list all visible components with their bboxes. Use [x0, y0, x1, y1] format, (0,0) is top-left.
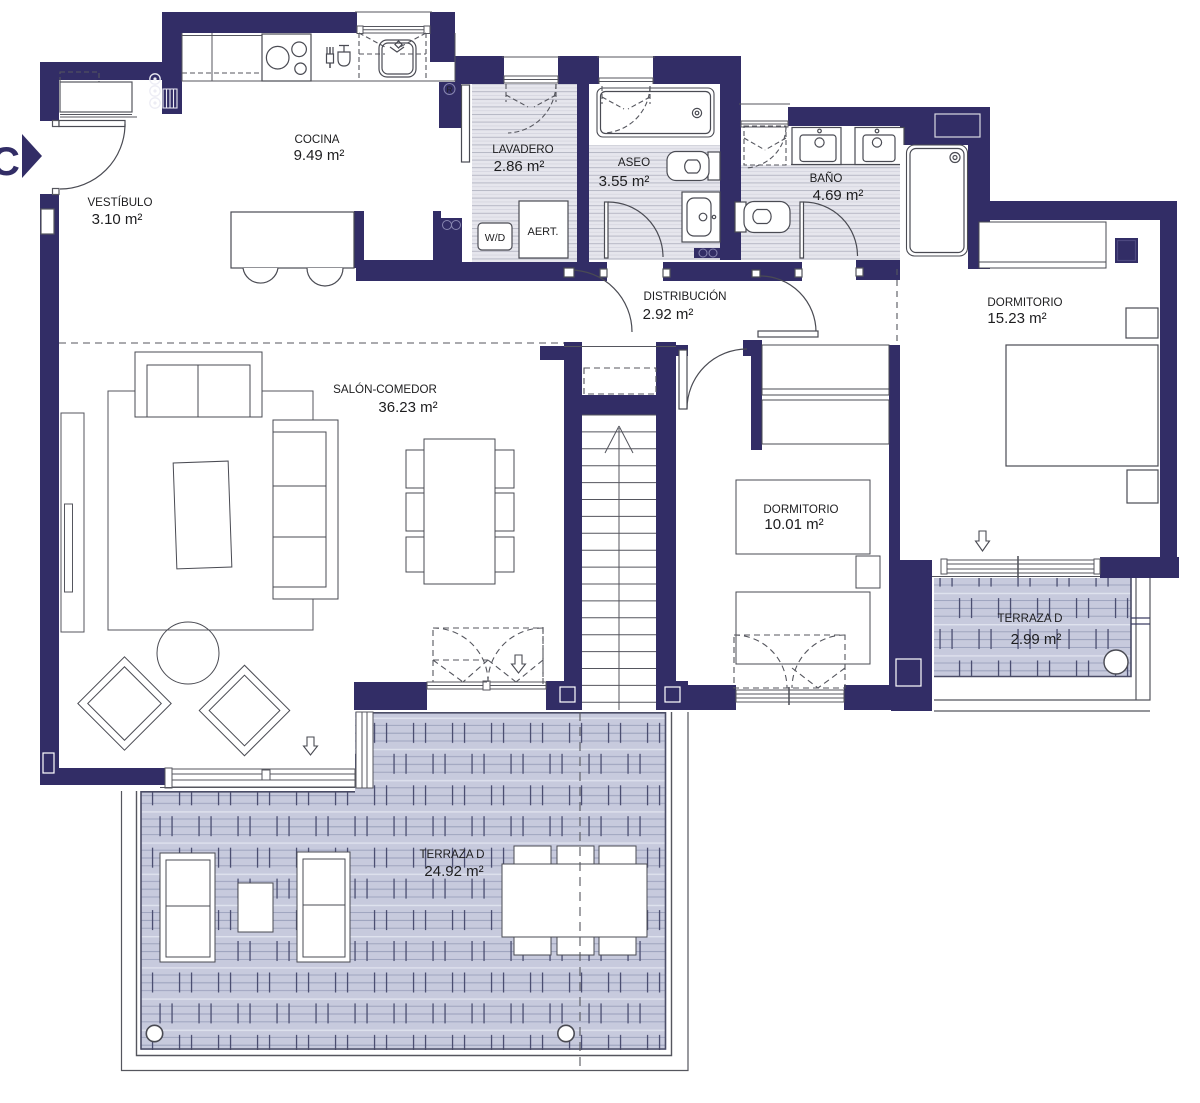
- svg-text:R: R: [447, 86, 453, 95]
- svg-text:4.69 m²: 4.69 m²: [813, 187, 864, 204]
- svg-text:36.23 m²: 36.23 m²: [378, 399, 437, 416]
- svg-text:15.23 m²: 15.23 m²: [987, 310, 1046, 327]
- svg-text:SALÓN-COMEDOR: SALÓN-COMEDOR: [333, 383, 437, 396]
- svg-text:DORMITORIO: DORMITORIO: [763, 503, 838, 516]
- svg-text:TERRAZA D: TERRAZA D: [419, 848, 484, 861]
- svg-text:3.10 m²: 3.10 m²: [92, 211, 143, 228]
- svg-text:DORMITORIO: DORMITORIO: [987, 296, 1062, 309]
- svg-text:3.55 m²: 3.55 m²: [599, 173, 650, 190]
- svg-text:24.92 m²: 24.92 m²: [424, 863, 483, 880]
- svg-text:2.86 m²: 2.86 m²: [494, 158, 545, 175]
- svg-text:C: C: [0, 140, 20, 184]
- svg-text:TERRAZA D: TERRAZA D: [997, 612, 1062, 625]
- svg-text:DISTRIBUCIÓN: DISTRIBUCIÓN: [643, 290, 726, 303]
- svg-text:2.99 m²: 2.99 m²: [1011, 631, 1062, 648]
- svg-text:COCINA: COCINA: [294, 133, 339, 146]
- svg-text:W/D: W/D: [485, 232, 506, 244]
- svg-text:LAVADERO: LAVADERO: [492, 143, 553, 156]
- svg-text:ASEO: ASEO: [618, 156, 650, 169]
- svg-text:AERT.: AERT.: [528, 226, 559, 238]
- svg-text:BAÑO: BAÑO: [810, 172, 843, 185]
- svg-text:2.92 m²: 2.92 m²: [643, 306, 694, 323]
- svg-text:10.01 m²: 10.01 m²: [764, 516, 823, 533]
- svg-text:9.49 m²: 9.49 m²: [294, 147, 345, 164]
- svg-text:VESTÍBULO: VESTÍBULO: [87, 196, 152, 209]
